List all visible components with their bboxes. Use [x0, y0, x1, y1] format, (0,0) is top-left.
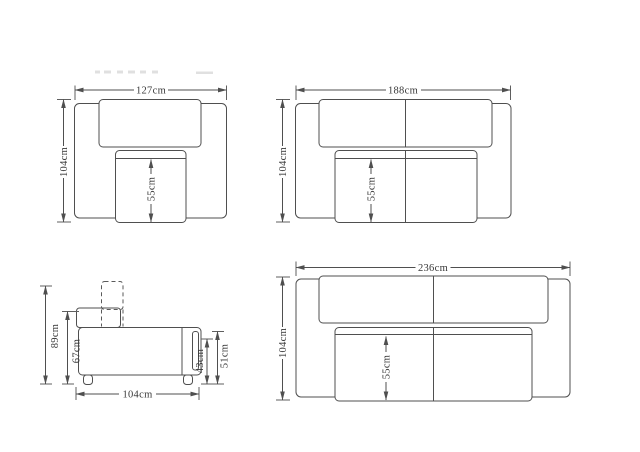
watermark-mark	[152, 71, 158, 74]
dim-label-side-seat-front-height: 43cm	[195, 349, 206, 374]
dim-loveseat-width: 188cm	[296, 85, 511, 101]
dim-loveseat-depth: 104cm	[276, 100, 290, 223]
dim-label-sofa-depth: 104cm	[278, 328, 289, 358]
dim-armchair-width: 127cm	[75, 85, 227, 101]
dim-label-side-back-height: 67cm	[72, 339, 83, 364]
dim-sofa-depth: 104cm	[276, 277, 290, 400]
dim-label-armchair-width: 127cm	[136, 86, 166, 97]
dim-label-sofa-width: 236cm	[418, 263, 448, 274]
dim-sofa-width: 236cm	[296, 262, 570, 277]
watermark-mark	[128, 71, 135, 74]
dim-label-side-arm-height: 51cm	[220, 344, 231, 369]
sofa-top-view: 236cm 104cm 55cm	[276, 262, 570, 402]
dim-label-armchair-seat-depth: 55cm	[147, 177, 158, 202]
furniture-dimension-drawing: 127cm 104cm 55cm 188cm	[0, 0, 640, 452]
watermark-mark	[140, 71, 146, 74]
headrest-raised-dashed	[102, 282, 124, 310]
sofa-side-view: 89cm 67cm 104cm 43cm 51cm	[40, 282, 231, 401]
dim-label-loveseat-width: 188cm	[388, 86, 418, 97]
watermark-mark	[104, 71, 111, 74]
armchair-top-view: 127cm 104cm 55cm	[57, 85, 227, 223]
side-foot-right	[184, 375, 193, 385]
dim-label-side-overall-height: 89cm	[50, 324, 61, 349]
loveseat-top-view: 188cm 104cm 55cm	[276, 85, 511, 223]
armchair-backrest	[99, 100, 201, 148]
faded-watermark	[95, 71, 213, 75]
dim-side-arm-height: 51cm	[212, 332, 231, 385]
dim-label-loveseat-depth: 104cm	[278, 147, 289, 177]
dim-label-side-depth: 104cm	[122, 390, 152, 401]
side-body	[79, 328, 202, 376]
side-foot-left	[84, 375, 93, 385]
dim-label-loveseat-seat-depth: 55cm	[367, 177, 378, 202]
dim-label-armchair-depth: 104cm	[59, 147, 70, 177]
dim-label-sofa-seat-depth: 55cm	[382, 355, 393, 380]
dim-armchair-depth: 104cm	[57, 100, 71, 223]
watermark-mark	[196, 72, 213, 75]
side-backrest	[77, 308, 121, 328]
watermark-mark	[117, 71, 123, 74]
dim-side-depth: 104cm	[76, 387, 199, 401]
watermark-mark	[95, 71, 100, 74]
dim-side-overall-height: 89cm	[40, 286, 61, 384]
drawing-page: 127cm 104cm 55cm 188cm	[0, 0, 640, 452]
